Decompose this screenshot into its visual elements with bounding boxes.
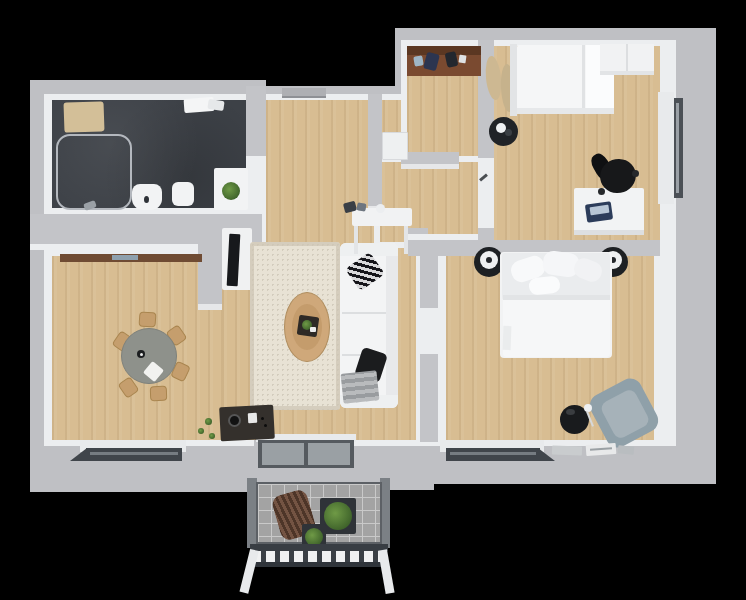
- sofa-backrest: [386, 245, 398, 406]
- office-chair-armrest-1: [632, 170, 639, 177]
- railing-post-left: [239, 549, 258, 594]
- wardrobe-item-white: [458, 55, 466, 64]
- dining-chair-4: [150, 386, 168, 402]
- bed2-duvet-fold: [503, 295, 610, 300]
- tray-item: [310, 327, 316, 332]
- bedroom1-door-threshold: [478, 158, 494, 232]
- sideboard-knob-2: [264, 424, 267, 427]
- sofa-seam-1: [342, 312, 386, 314]
- bed1-fold-line: [582, 45, 585, 114]
- pouf-highlight: [566, 409, 575, 415]
- bed1-foot-shadow: [517, 108, 614, 114]
- shower-enclosure: [56, 134, 132, 210]
- railing-bottom-rail: [250, 562, 388, 567]
- closet-wardrobe-top: [407, 46, 481, 55]
- entry-door-line: [282, 96, 326, 98]
- bathroom-door-threshold: [246, 156, 266, 214]
- bedroom2-window-inner-line: [450, 452, 536, 455]
- railing-post-right: [378, 549, 395, 594]
- plant-large: [324, 502, 352, 530]
- toilet-lid-dot: [144, 196, 149, 203]
- wall-closet-south-face: [401, 164, 459, 169]
- table-vase-dot: [140, 353, 143, 356]
- bedroom1-wardrobe-edge: [600, 71, 654, 75]
- dining-chair-1: [138, 311, 156, 327]
- bed1-headboard: [510, 44, 517, 116]
- plant-twig-2: [198, 428, 204, 434]
- console-cup: [376, 204, 385, 213]
- railing-top-rail: [250, 544, 388, 551]
- console-leg-left: [354, 226, 358, 254]
- side-table-item: [505, 129, 512, 136]
- nightstand-left-dot: [486, 257, 492, 263]
- bed2-duvet: [503, 295, 610, 357]
- desk-edge: [574, 230, 644, 235]
- balcony-door-pane-right: [308, 443, 350, 465]
- office-chair-armrest-2: [598, 188, 605, 195]
- plant-twig-1: [205, 418, 212, 425]
- wall-stub-dining-cap: [198, 304, 222, 310]
- wall-bedroom-divider-face: [408, 234, 488, 240]
- console-leg-right: [404, 226, 408, 254]
- towel-2: [207, 99, 224, 111]
- bedroom1-window-streak: [676, 103, 679, 193]
- sideboard-knob-1: [261, 417, 264, 420]
- bed2-duvet-wrinkle: [503, 326, 512, 350]
- dining-bench-item: [112, 255, 138, 260]
- floor-plan-canvas: [0, 0, 746, 600]
- hall-wall-cabinet: [382, 132, 408, 160]
- vanity-plant: [222, 182, 240, 200]
- wall-hall-divider: [368, 94, 382, 212]
- console-item-gray: [356, 202, 366, 211]
- bedroom2-door-threshold: [418, 308, 440, 354]
- magazine-3: [618, 445, 635, 455]
- wall-stub-dining: [198, 214, 222, 310]
- bidet-sink: [172, 182, 194, 206]
- wall-bedroom1-west-lower: [478, 228, 494, 242]
- sideboard-card: [248, 413, 258, 423]
- corridor-floor: [380, 162, 482, 242]
- magazine-1: [552, 445, 582, 455]
- bedroom1-window-sill: [658, 92, 674, 204]
- bedroom1-wardrobe-seam: [626, 44, 628, 74]
- sofa-throw-blanket: [341, 370, 380, 404]
- bath-mat: [63, 101, 104, 132]
- wall-bathroom-east: [246, 86, 266, 156]
- wardrobe-item-blue: [413, 55, 424, 66]
- dining-window-inner-line: [90, 452, 178, 455]
- plant-twig-3: [209, 433, 215, 439]
- record-player: [228, 414, 241, 427]
- balcony-door-pane-left: [262, 443, 304, 465]
